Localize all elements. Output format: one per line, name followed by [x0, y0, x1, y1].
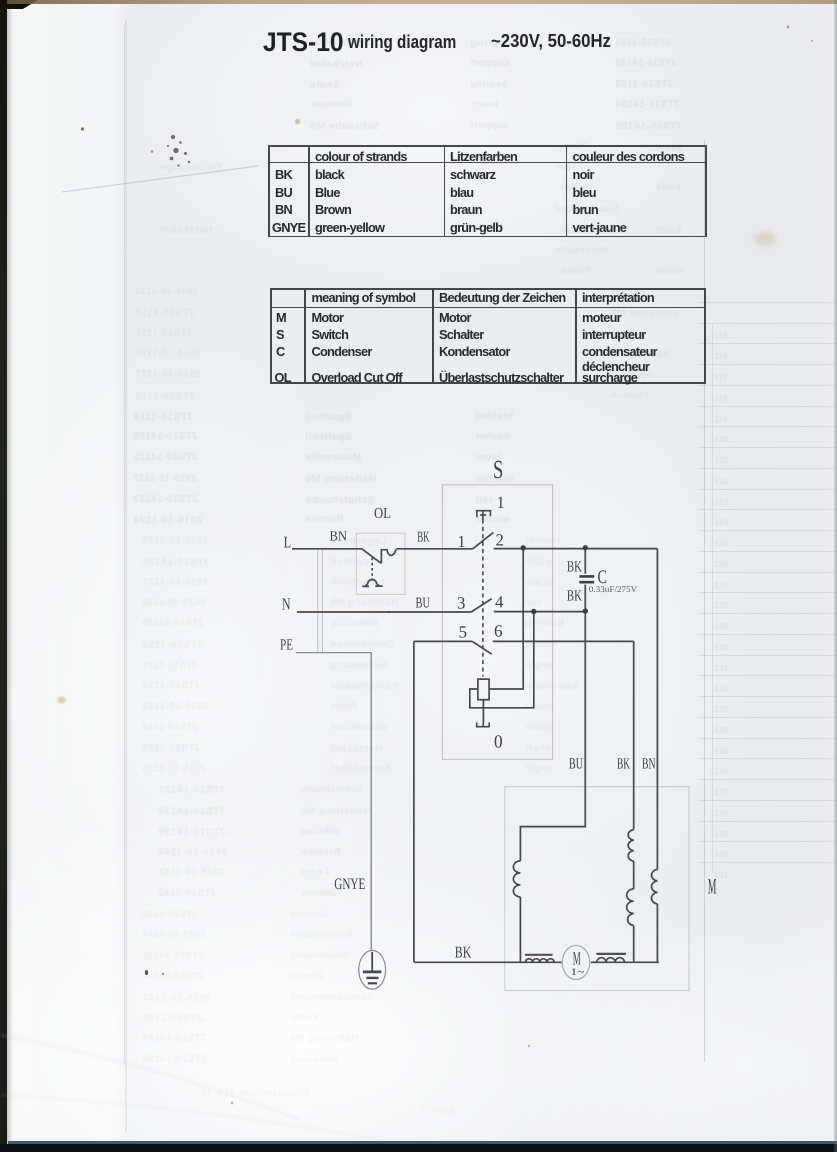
svg-text:2: 2	[496, 531, 504, 550]
svg-text:1~: 1~	[571, 967, 586, 978]
svg-text:GNYE: GNYE	[334, 876, 365, 893]
svg-text:BN: BN	[330, 529, 348, 544]
svg-text:0: 0	[494, 733, 503, 753]
svg-text:BK: BK	[567, 588, 583, 605]
svg-text:5: 5	[459, 623, 468, 642]
svg-text:1: 1	[458, 532, 466, 551]
svg-text:4: 4	[495, 593, 504, 612]
svg-text:BK: BK	[617, 756, 630, 773]
svg-text:BN: BN	[642, 756, 656, 773]
svg-text:BU: BU	[416, 596, 431, 612]
svg-text:1: 1	[497, 493, 505, 512]
svg-text:BU: BU	[569, 756, 583, 773]
svg-text:BK: BK	[567, 559, 583, 576]
svg-text:OL: OL	[374, 505, 391, 522]
svg-text:3: 3	[457, 594, 465, 613]
svg-text:S: S	[493, 455, 503, 484]
svg-text:0.33uF/275V: 0.33uF/275V	[589, 584, 638, 594]
svg-text:6: 6	[494, 622, 503, 641]
svg-text:PE: PE	[280, 637, 293, 654]
svg-text:L: L	[284, 533, 292, 552]
svg-text:N: N	[282, 595, 291, 614]
svg-text:M: M	[708, 874, 717, 899]
svg-text:BK: BK	[417, 530, 429, 546]
svg-text:BK: BK	[455, 943, 472, 962]
